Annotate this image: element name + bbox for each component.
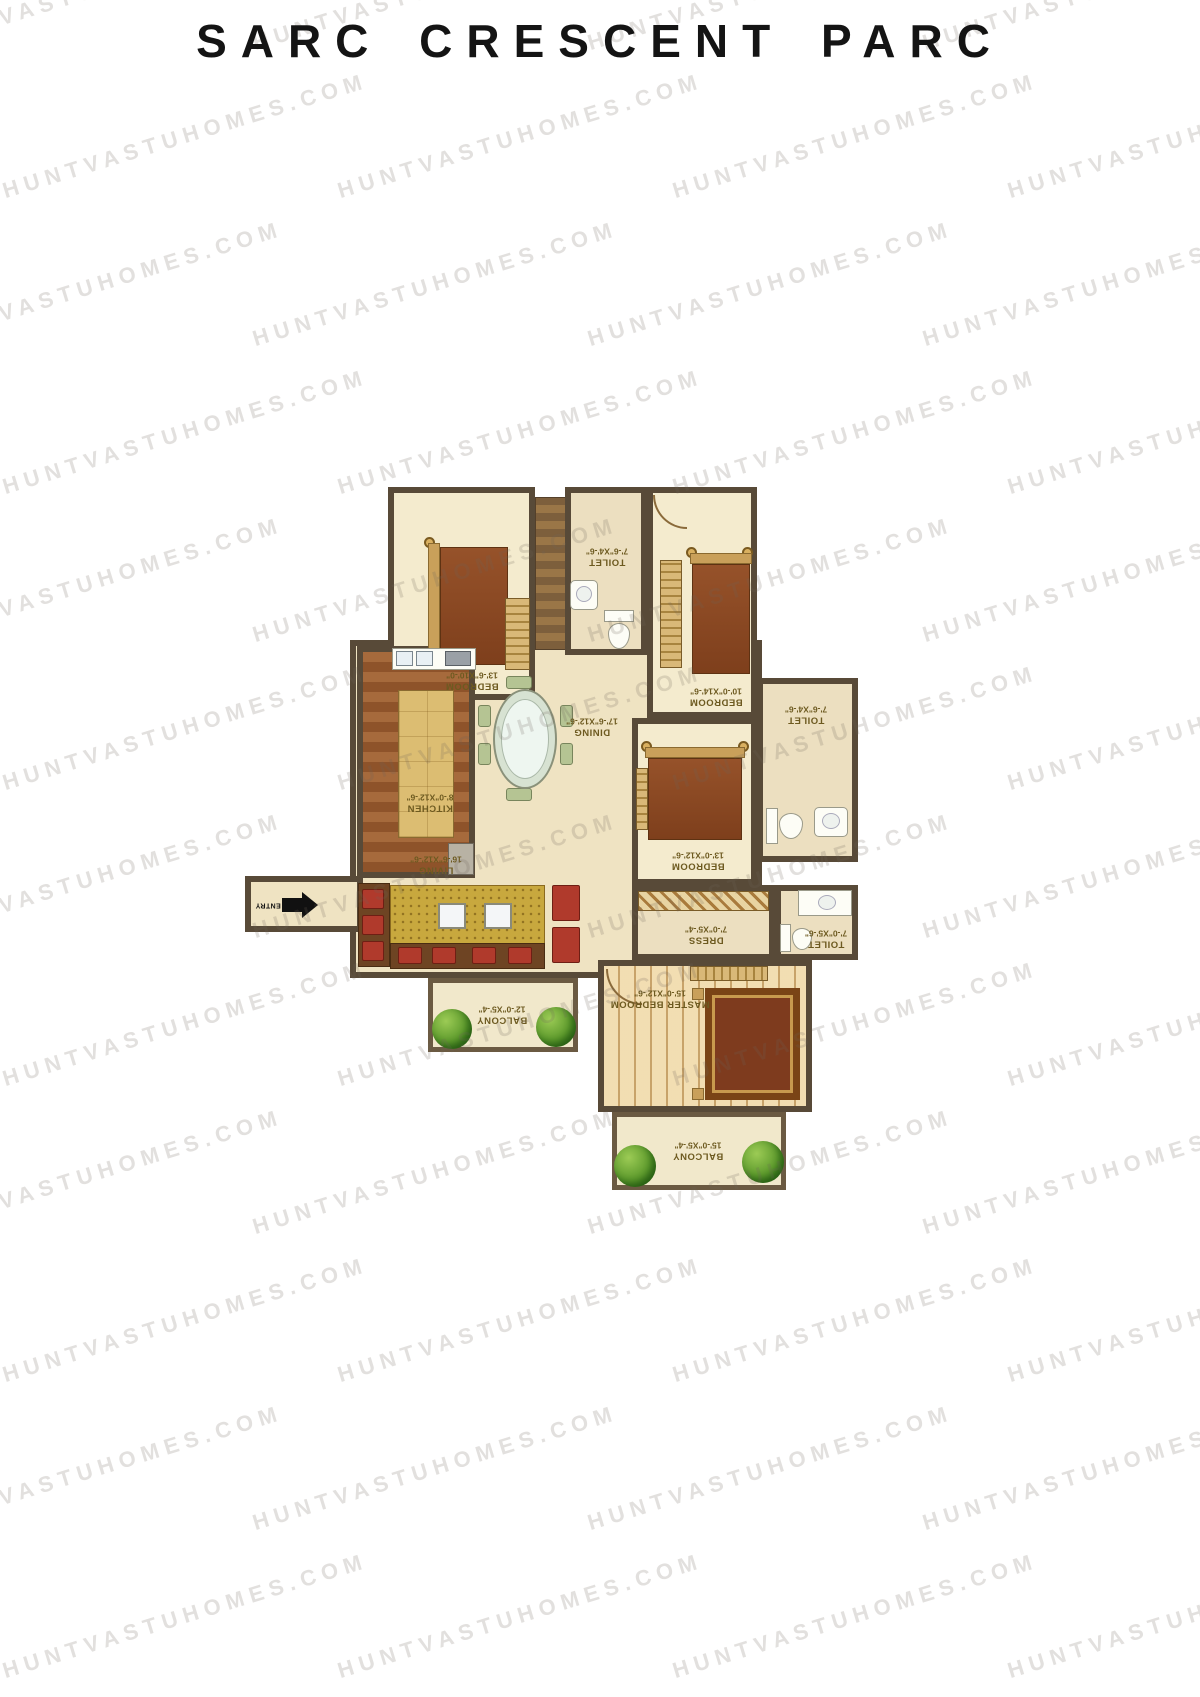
dining-chair (478, 743, 491, 765)
watermark-text: HUNTVASTUHOMES.COM (1005, 1548, 1200, 1684)
kitchen-sink-icon (416, 651, 433, 666)
watermark-text: HUNTVASTUHOMES.COM (335, 68, 706, 204)
bedside-bench (636, 768, 648, 830)
dining-chair (560, 743, 573, 765)
dining-chair (478, 705, 491, 727)
kitchen-counter (398, 690, 454, 838)
bed-headboard (645, 747, 745, 758)
sofa-cushion (508, 947, 532, 964)
sofa-cushion (362, 889, 384, 909)
label-balcony-2: BALCONY 15'-0"X5'-4" (673, 1141, 723, 1162)
watermark-text: HUNTVASTUHOMES.COM (670, 1548, 1041, 1684)
watermark-text: HUNTVASTUHOMES.COM (335, 364, 706, 500)
wc-tank-icon (604, 610, 634, 622)
watermark-text: HUNTVASTUHOMES.COM (920, 1104, 1200, 1240)
coffee-table (484, 903, 512, 929)
dining-chair (506, 676, 532, 689)
watermark-text: HUNTVASTUHOMES.COM (0, 68, 371, 204)
watermark-text: HUNTVASTUHOMES.COM (1005, 660, 1200, 796)
washbasin-bowl-icon (818, 895, 836, 910)
label-toilet-3: TOILET 7'-0"X5'-6" (805, 929, 847, 950)
watermark-text: HUNTVASTUHOMES.COM (920, 512, 1200, 648)
plant-bush-icon (432, 1009, 472, 1049)
sofa-cushion (362, 915, 384, 935)
watermark-text: HUNTVASTUHOMES.COM (585, 1400, 956, 1536)
watermark-text: HUNTVASTUHOMES.COM (0, 1252, 371, 1388)
watermark-text: HUNTVASTUHOMES.COM (670, 364, 1041, 500)
watermark-text: HUNTVASTUHOMES.COM (0, 216, 286, 352)
bed-headboard (690, 553, 752, 564)
sofa-cushion (362, 941, 384, 961)
wc-tank-icon (780, 924, 791, 952)
label-bedroom-3: BEDROOM 13'-0"X12'-6" (671, 851, 724, 872)
page-title: SARC CRESCENT PARC (0, 14, 1200, 68)
kitchen-sink-icon (396, 651, 413, 666)
washbasin-bowl-icon (822, 813, 840, 829)
label-bedroom-2: BEDROOM 10'-0"X14'-6" (689, 687, 742, 708)
armchair (552, 927, 580, 963)
wc-tank-icon (766, 808, 778, 844)
watermark-text: HUNTVASTUHOMES.COM (1005, 364, 1200, 500)
wardrobe-unit (535, 497, 567, 650)
room-toilet-1 (565, 487, 647, 655)
watermark-text: HUNTVASTUHOMES.COM (1005, 68, 1200, 204)
label-dress: DRESS 7'-0"X5'-4" (685, 925, 727, 946)
plant-bush-icon (536, 1007, 576, 1047)
label-kitchen: KITCHEN 8'-0"X12'-6" (406, 793, 453, 814)
dress-closet (638, 891, 769, 911)
watermark-text: HUNTVASTUHOMES.COM (920, 808, 1200, 944)
watermark-text: HUNTVASTUHOMES.COM (920, 216, 1200, 352)
hob-icon (445, 651, 471, 666)
armchair (552, 885, 580, 921)
entry-label: ENTRY (255, 902, 280, 909)
label-balcony-1: BALCONY 12'-0"X5'-4" (477, 1005, 527, 1026)
watermark-text: HUNTVASTUHOMES.COM (335, 1252, 706, 1388)
bed-master (705, 988, 800, 1100)
wardrobe-bedroom-2 (660, 560, 682, 668)
plant-bush-icon (742, 1141, 784, 1183)
watermark-text: HUNTVASTUHOMES.COM (1005, 1252, 1200, 1388)
sofa-cushion (398, 947, 422, 964)
bedside-table (692, 1088, 704, 1100)
wardrobe-bedroom-1 (505, 598, 530, 670)
watermark-text: HUNTVASTUHOMES.COM (335, 1548, 706, 1684)
label-bedroom-1: BEDROOM 13'-6"X10'-0" (445, 671, 498, 692)
coffee-table (438, 903, 466, 929)
floor-plan: ENTRY BEDROOM 13'-6"X10'-0" TOILET 7'-6"… (240, 483, 864, 1195)
watermark-text: HUNTVASTUHOMES.COM (0, 364, 371, 500)
watermark-text: HUNTVASTUHOMES.COM (585, 216, 956, 352)
label-toilet-2: TOILET 7'-6"X4'-6" (785, 705, 827, 726)
label-dining: DINING 17'-6"X12'-6" (566, 717, 618, 738)
watermark-text: HUNTVASTUHOMES.COM (670, 68, 1041, 204)
watermark-text: HUNTVASTUHOMES.COM (670, 1252, 1041, 1388)
sofa-cushion (432, 947, 456, 964)
watermark-text: HUNTVASTUHOMES.COM (920, 1400, 1200, 1536)
master-dresser (690, 966, 768, 981)
sofa-cushion (472, 947, 496, 964)
bed-bedroom-2 (692, 564, 750, 674)
dining-chair (506, 788, 532, 801)
label-toilet-1: TOILET 7'-6"X4'-6" (586, 547, 628, 568)
plant-bush-icon (614, 1145, 656, 1187)
label-living: LIVING 16'-6"X12'-6" (410, 855, 462, 876)
watermark-text: HUNTVASTUHOMES.COM (250, 216, 621, 352)
bed-bedroom-3 (648, 758, 742, 840)
watermark-text: HUNTVASTUHOMES.COM (1005, 956, 1200, 1092)
watermark-text: HUNTVASTUHOMES.COM (0, 1400, 286, 1536)
watermark-text: HUNTVASTUHOMES.COM (250, 1400, 621, 1536)
watermark-text: HUNTVASTUHOMES.COM (0, 1548, 371, 1684)
label-master-bedroom: MASTER BEDROOM 15'-0"X12'-6" (610, 989, 709, 1010)
dining-table-top (501, 699, 549, 779)
washbasin-bowl-icon (576, 586, 592, 602)
